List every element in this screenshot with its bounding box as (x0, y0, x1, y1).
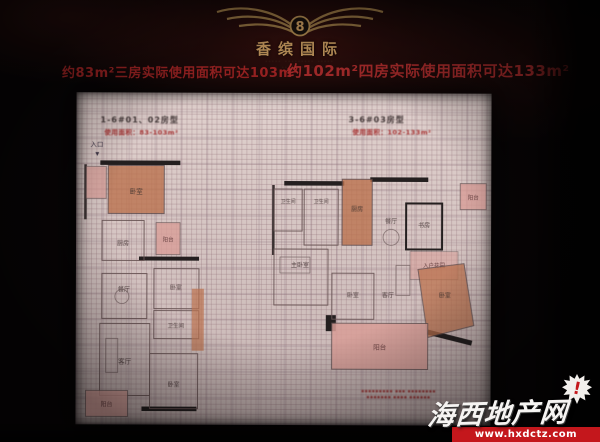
floorplan-right: 卫生间 卫生间 厨房 餐厅 阳台 书房 入户花园 主卧室 卧室 客厅 卧室 阳台 (268, 145, 491, 402)
dining-table (383, 229, 399, 245)
room-label: 卧室 (168, 381, 180, 389)
projection-slide-photo: 8 香缤国际 ····· ········· ····· · ···· ····… (0, 0, 600, 442)
room-label: 阳台 (373, 342, 386, 351)
wall (100, 160, 180, 165)
sofa (396, 265, 410, 295)
room-label: 卫生间 (281, 198, 296, 205)
room-label: 厨房 (117, 239, 129, 247)
sofa (106, 338, 118, 372)
headline-4br: 约102m²四房实际使用面积可达133m² (287, 60, 570, 81)
right-area-note: 使用面积：102-133m² (352, 126, 431, 136)
floorplan-left: 入口 ▼ 卧室 厨房 阳台 餐厅 卧室 卫生间 客厅 卧室 (81, 128, 222, 420)
left-unit-label: 1-6#01、02房型 (100, 114, 178, 125)
room-bath1 (274, 189, 302, 231)
room-label: 客厅 (118, 356, 132, 365)
room-label: 主卧室 (291, 261, 309, 269)
entrance-label: 入口 (90, 140, 103, 148)
brand-name: 香缤国际 (0, 38, 600, 59)
room-utility (86, 166, 106, 198)
room-label: 厨房 (351, 205, 363, 213)
monogram-8: 8 (295, 20, 304, 35)
headline-3br: 约83m²三房实际使用面积可达103m² (62, 62, 299, 81)
room-label: 卫生间 (314, 198, 329, 205)
wall (139, 256, 199, 260)
room-label: 餐厅 (385, 217, 397, 225)
room-label: 阳台 (163, 236, 175, 244)
room-label: 卧室 (439, 292, 451, 300)
watermark-site-name: 海西地产网 (426, 390, 569, 433)
exclamation-glyph: ! (571, 378, 583, 399)
wings-emblem-icon: 8 (205, 2, 395, 42)
wall (370, 177, 428, 182)
room-label: 客厅 (382, 291, 394, 299)
floorplan-board: 1-6#01、02房型 使用面积：83-103m² 3-6#03房型 使用面积：… (75, 92, 491, 425)
room-bath2 (304, 189, 338, 245)
right-unit-label: 3-6#03房型 (348, 114, 404, 125)
entrance-arrow-icon: ▼ (95, 151, 99, 157)
wall (284, 181, 344, 186)
room-label: 书房 (418, 221, 430, 229)
room-label: 卧室 (130, 186, 144, 195)
room-label: 阳台 (468, 194, 480, 202)
room-label: 卫生间 (167, 322, 184, 330)
room-label: 卧室 (170, 284, 182, 292)
room-label: 卧室 (347, 291, 359, 299)
room-shaft (192, 289, 204, 351)
room-label: 阳台 (100, 400, 112, 408)
room-dining (102, 273, 147, 318)
